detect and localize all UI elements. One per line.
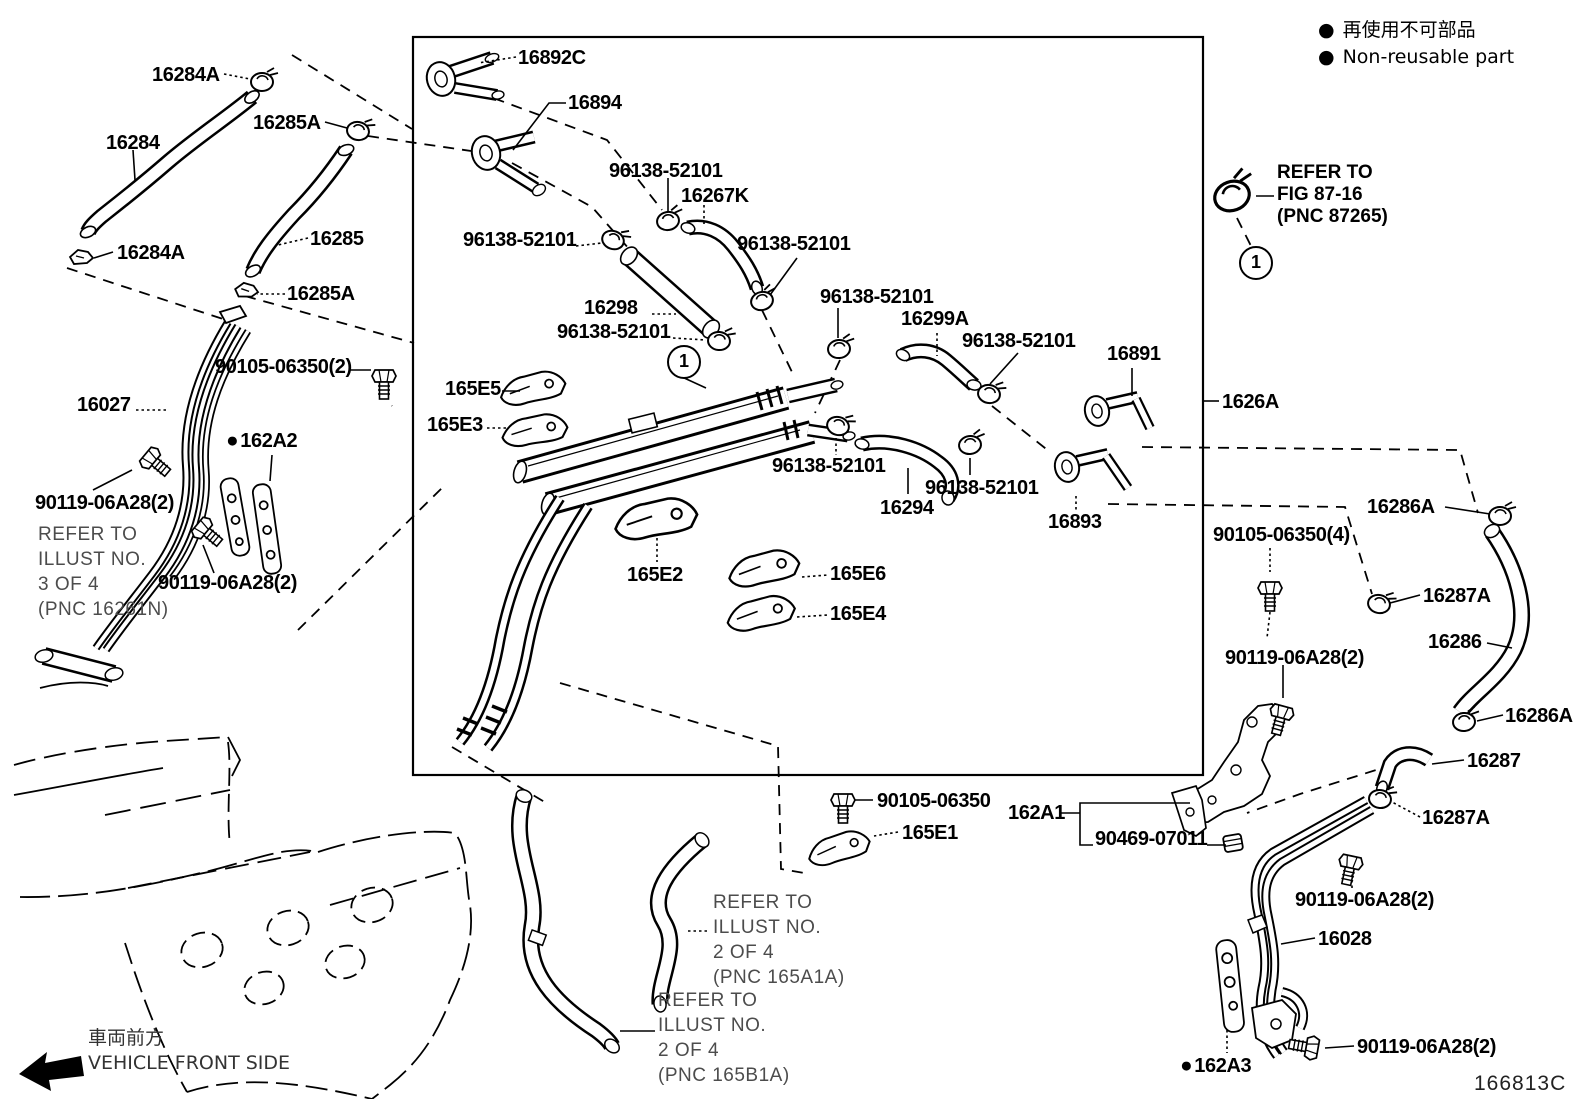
part-label: 16287A xyxy=(1422,807,1490,829)
reference-note-line: (PNC 165A1A) xyxy=(713,965,845,990)
part-number-text: 16287A xyxy=(1423,585,1491,607)
part-label: 90119-06A28(2) xyxy=(1357,1036,1496,1058)
legend-bullet-icon: ● xyxy=(1318,46,1335,68)
part-label: 16284 xyxy=(106,132,160,154)
part-label: 96138-52101 xyxy=(557,321,671,343)
part-label: 16285A xyxy=(253,112,321,134)
reference-note-line: 2 OF 4 xyxy=(658,1038,790,1063)
part-number-text: 16298 xyxy=(584,297,638,319)
part-number-text: 90105-06350(4) xyxy=(1213,524,1350,546)
part-number-text: 96138-52101 xyxy=(737,233,851,255)
part-label: 16286A xyxy=(1367,496,1435,518)
part-label: 16267K xyxy=(681,185,749,207)
part-label: 16893 xyxy=(1048,511,1102,533)
part-number-text: 162A1 xyxy=(1008,802,1065,824)
part-number-text: 165E4 xyxy=(830,603,886,625)
part-label: 90119-06A28(2) xyxy=(158,572,297,594)
part-label: 165E4 xyxy=(830,603,886,625)
part-label: 16287A xyxy=(1423,585,1491,607)
part-label: 90119-06A28(2) xyxy=(35,492,174,514)
part-label: 16284A xyxy=(152,64,220,86)
part-number-text: 96138-52101 xyxy=(772,455,886,477)
reference-note-line: REFER TO xyxy=(658,988,790,1013)
reference-note-line: ILLUST NO. xyxy=(658,1013,790,1038)
part-number-text: 16287A xyxy=(1422,807,1490,829)
non-reusable-bullet-icon: ● xyxy=(1180,1054,1192,1077)
part-label: 90119-06A28(2) xyxy=(1295,889,1434,911)
part-label: 90469-07011 xyxy=(1095,828,1207,850)
part-number-text: 16285 xyxy=(310,228,364,250)
reference-note: REFER TOILLUST NO.2 OF 4(PNC 165A1A) xyxy=(713,890,845,990)
part-label: ●162A2 xyxy=(226,430,297,452)
part-number-text: 96138-52101 xyxy=(962,330,1076,352)
reference-note: REFER TOFIG 87-16(PNC 87265) xyxy=(1277,162,1388,228)
part-number-text: 90119-06A28(2) xyxy=(1225,647,1364,669)
vehicle-front-side-en: VEHICLE FRONT SIDE xyxy=(88,1051,290,1075)
part-number-text: 90119-06A28(2) xyxy=(158,572,297,594)
part-number-text: 16284A xyxy=(117,242,185,264)
part-number-text: 16286A xyxy=(1367,496,1435,518)
part-label: 165E5 xyxy=(445,378,501,400)
part-label: 96138-52101 xyxy=(737,233,851,255)
part-label: 90105-06350(4) xyxy=(1213,524,1350,546)
part-number-text: 165E3 xyxy=(427,414,483,436)
part-number-text: 16286 xyxy=(1428,631,1482,653)
circled-index-marker: 1 xyxy=(1239,246,1273,280)
part-label: 1626A xyxy=(1222,391,1279,413)
part-label: 16892C xyxy=(518,47,586,69)
part-number-text: 16028 xyxy=(1318,928,1372,950)
part-number-text: 16284A xyxy=(152,64,220,86)
part-number-text: 16892C xyxy=(518,47,586,69)
legend-row: ●再使用不可部品 xyxy=(1318,18,1476,42)
part-number-text: 16891 xyxy=(1107,343,1161,365)
part-number-text: 96138-52101 xyxy=(609,160,723,182)
part-label: 16287 xyxy=(1467,750,1521,772)
reference-note-line: FIG 87-16 xyxy=(1277,184,1388,206)
part-label: 165E6 xyxy=(830,563,886,585)
part-label: 165E2 xyxy=(627,564,683,586)
reference-note-line: 2 OF 4 xyxy=(713,940,845,965)
parts-diagram-page: const data = JSON.parse(document.getElem… xyxy=(0,0,1592,1099)
diagram-number: 166813C xyxy=(1474,1072,1566,1096)
part-label: 16286 xyxy=(1428,631,1482,653)
part-label: 16028 xyxy=(1318,928,1372,950)
reference-note-line: REFER TO xyxy=(1277,162,1388,184)
part-label: 96138-52101 xyxy=(925,477,1039,499)
part-label: 96138-52101 xyxy=(820,286,934,308)
part-number-text: 16284 xyxy=(106,132,160,154)
part-number-text: 165E6 xyxy=(830,563,886,585)
part-label: 162A1 xyxy=(1008,802,1065,824)
part-label: 16284A xyxy=(117,242,185,264)
part-label: 16285A xyxy=(287,283,355,305)
part-number-text: 162A3 xyxy=(1194,1055,1251,1077)
part-label: 96138-52101 xyxy=(609,160,723,182)
part-label: 16298 xyxy=(584,297,638,319)
part-label: 96138-52101 xyxy=(962,330,1076,352)
part-label: ●162A3 xyxy=(1180,1055,1251,1077)
part-label: 16285 xyxy=(310,228,364,250)
part-label: 90119-06A28(2) xyxy=(1225,647,1364,669)
reference-note-line: REFER TO xyxy=(713,890,845,915)
part-label: 16286A xyxy=(1505,705,1573,727)
part-number-text: 16893 xyxy=(1048,511,1102,533)
part-number-text: 165E5 xyxy=(445,378,501,400)
part-number-text: 90119-06A28(2) xyxy=(1357,1036,1496,1058)
part-label: 165E1 xyxy=(902,822,958,844)
reference-note-line: 3 OF 4 xyxy=(38,572,169,597)
part-label: 165E3 xyxy=(427,414,483,436)
part-number-text: 16027 xyxy=(77,394,131,416)
part-label: 90105-06350(2) xyxy=(215,356,352,378)
part-label: 90105-06350 xyxy=(877,790,991,812)
part-label: 16894 xyxy=(568,92,622,114)
part-number-text: 165E2 xyxy=(627,564,683,586)
part-number-text: 16287 xyxy=(1467,750,1521,772)
reference-note: REFER TOILLUST NO.2 OF 4(PNC 165B1A) xyxy=(658,988,790,1088)
reference-note-line: (PNC 165B1A) xyxy=(658,1063,790,1088)
part-label: 16294 xyxy=(880,497,934,519)
part-number-text: 16285A xyxy=(287,283,355,305)
part-number-text: 96138-52101 xyxy=(820,286,934,308)
part-label: 16891 xyxy=(1107,343,1161,365)
part-number-text: 90119-06A28(2) xyxy=(1295,889,1434,911)
part-label: 16027 xyxy=(77,394,131,416)
reference-note: REFER TOILLUST NO.3 OF 4(PNC 16261N) xyxy=(38,522,169,622)
part-number-text: 16299A xyxy=(901,308,969,330)
part-label: 96138-52101 xyxy=(463,229,577,251)
part-number-text: 16267K xyxy=(681,185,749,207)
legend-text: 再使用不可部品 xyxy=(1343,19,1476,41)
part-number-text: 96138-52101 xyxy=(925,477,1039,499)
part-number-text: 16286A xyxy=(1505,705,1573,727)
part-number-text: 90105-06350(2) xyxy=(215,356,352,378)
part-number-text: 165E1 xyxy=(902,822,958,844)
circled-index-marker: 1 xyxy=(667,345,701,379)
reference-note-line: REFER TO xyxy=(38,522,169,547)
part-label: 16299A xyxy=(901,308,969,330)
vehicle-front-arrow xyxy=(19,1052,84,1091)
part-label: 96138-52101 xyxy=(772,455,886,477)
part-number-text: 90105-06350 xyxy=(877,790,991,812)
legend-bullet-icon: ● xyxy=(1318,19,1335,41)
part-number-text: 90119-06A28(2) xyxy=(35,492,174,514)
vehicle-front-side-jp: 車両前方 xyxy=(88,1026,164,1050)
legend-row: ●Non-reusable part xyxy=(1318,45,1514,69)
reference-note-line: (PNC 87265) xyxy=(1277,206,1388,228)
reference-note-line: ILLUST NO. xyxy=(38,547,169,572)
part-number-text: 90469-07011 xyxy=(1095,828,1207,850)
legend-text: Non-reusable part xyxy=(1343,46,1514,68)
part-number-text: 162A2 xyxy=(240,430,297,452)
part-number-text: 16894 xyxy=(568,92,622,114)
reference-note-line: ILLUST NO. xyxy=(713,915,845,940)
reference-note-line: (PNC 16261N) xyxy=(38,597,169,622)
part-number-text: 16285A xyxy=(253,112,321,134)
non-reusable-bullet-icon: ● xyxy=(226,429,238,452)
part-number-text: 16294 xyxy=(880,497,934,519)
part-number-text: 1626A xyxy=(1222,391,1279,413)
part-number-text: 96138-52101 xyxy=(557,321,671,343)
part-number-text: 96138-52101 xyxy=(463,229,577,251)
